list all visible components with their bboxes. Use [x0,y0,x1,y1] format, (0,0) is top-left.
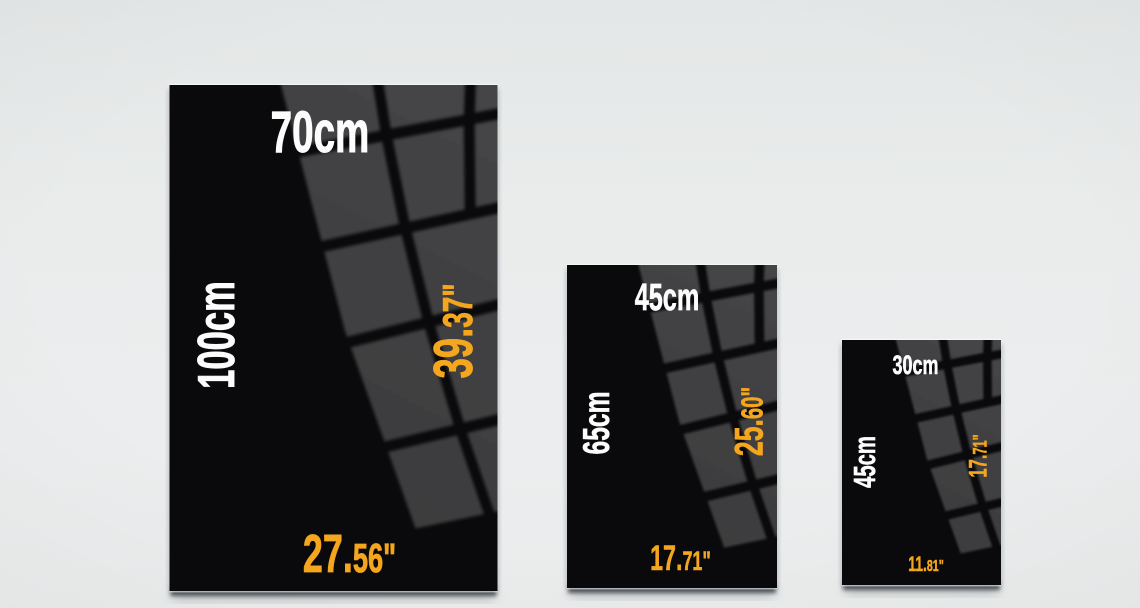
svg-text:45cm: 45cm [849,436,882,488]
svg-text:30cm: 30cm [893,349,939,380]
svg-text:65cm: 65cm [576,392,617,455]
svg-text:100cm: 100cm [188,281,246,389]
svg-text:17.71": 17.71" [650,539,711,578]
svg-text:17.71": 17.71" [965,434,992,477]
svg-text:45cm: 45cm [635,276,700,318]
svg-text:70cm: 70cm [271,100,370,165]
